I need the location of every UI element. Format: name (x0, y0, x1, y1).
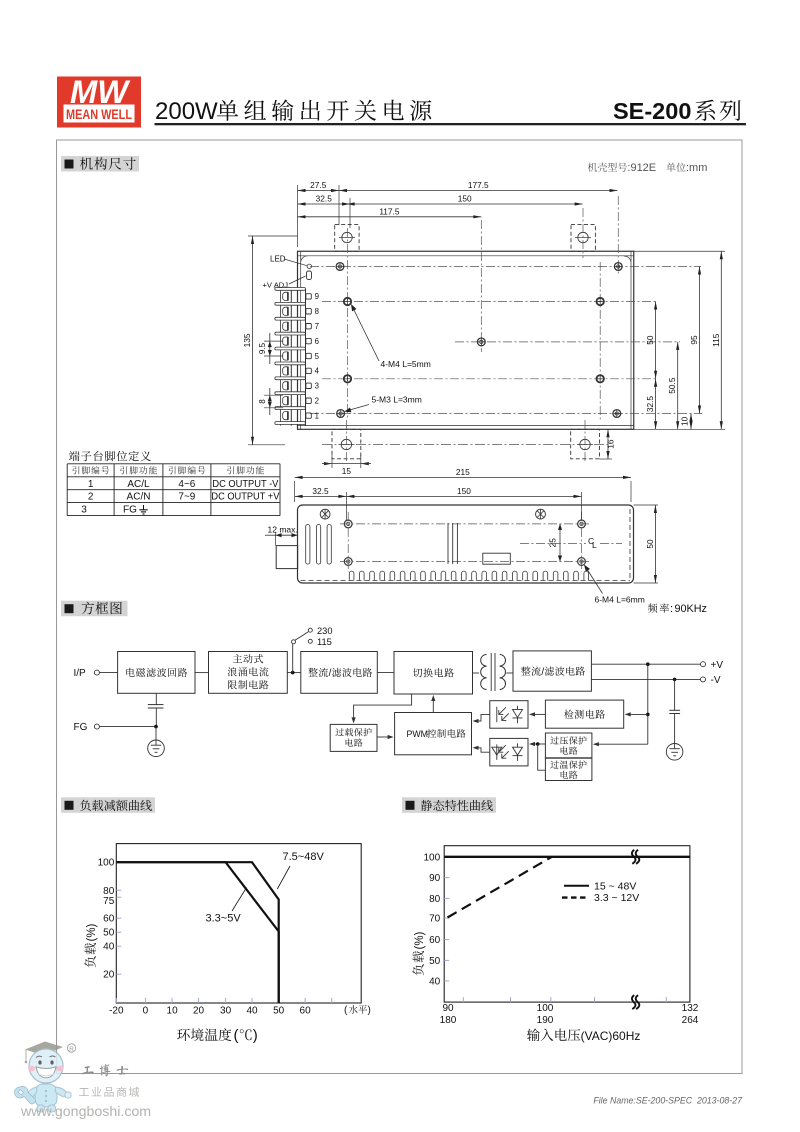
svg-text:6: 6 (315, 337, 319, 346)
svg-text:60: 60 (103, 914, 115, 925)
svg-text:4-M4 L=5mm: 4-M4 L=5mm (381, 359, 431, 369)
svg-text:I/P: I/P (74, 668, 87, 679)
svg-text:www.gongboshi.com: www.gongboshi.com (20, 1104, 151, 1120)
svg-text:60: 60 (300, 1006, 312, 1017)
svg-text:100: 100 (98, 858, 115, 869)
svg-text:50: 50 (645, 539, 655, 549)
svg-text:10: 10 (680, 416, 690, 426)
svg-text:115: 115 (317, 637, 332, 647)
svg-text:(%): (%) (86, 923, 98, 941)
svg-text:40: 40 (103, 942, 115, 953)
svg-text:1: 1 (88, 479, 94, 490)
svg-text:90: 90 (429, 873, 441, 884)
svg-text:/: / (541, 667, 544, 678)
svg-text:100: 100 (424, 852, 441, 863)
svg-text:20: 20 (103, 970, 115, 981)
svg-text:32.5: 32.5 (316, 194, 333, 204)
svg-text:3: 3 (315, 382, 319, 391)
svg-text:AC/L: AC/L (127, 479, 150, 490)
svg-text:50: 50 (103, 928, 115, 939)
svg-text:50: 50 (273, 1006, 285, 1017)
svg-text:FG: FG (123, 505, 137, 516)
svg-text:32.5: 32.5 (312, 486, 329, 496)
svg-text:(VAC)60Hz: (VAC)60Hz (581, 1029, 641, 1043)
svg-text:4~6: 4~6 (178, 479, 195, 490)
svg-text:DC OUTPUT +V: DC OUTPUT +V (211, 492, 279, 503)
svg-text:30: 30 (220, 1006, 232, 1017)
svg-text:177.5: 177.5 (468, 180, 489, 190)
svg-text:DC OUTPUT -V: DC OUTPUT -V (212, 479, 278, 490)
svg-text:6-M4 L=6mm: 6-M4 L=6mm (595, 595, 645, 605)
svg-text:50.5: 50.5 (667, 377, 677, 394)
svg-text:230: 230 (317, 626, 333, 636)
svg-text:190: 190 (537, 1015, 554, 1026)
svg-text:15: 15 (342, 466, 352, 476)
svg-text:90: 90 (442, 1003, 454, 1014)
svg-text:SE-200: SE-200 (613, 98, 691, 124)
svg-text:4: 4 (315, 367, 320, 376)
svg-text::mm: :mm (686, 162, 707, 174)
svg-text:2: 2 (88, 492, 94, 503)
svg-text:50: 50 (429, 956, 441, 967)
svg-text:File Name:SE-200-SPEC 2013-08: File Name:SE-200-SPEC 2013-08-27 (593, 1096, 743, 1106)
svg-text:+V: +V (711, 660, 724, 671)
svg-text:40: 40 (429, 976, 441, 987)
svg-text:7: 7 (315, 322, 319, 331)
svg-text:1: 1 (315, 411, 319, 420)
svg-text:PWM: PWM (407, 729, 429, 739)
svg-text:117.5: 117.5 (379, 206, 400, 216)
svg-text::912E: :912E (627, 162, 656, 174)
svg-text:264: 264 (682, 1015, 699, 1026)
svg-text:/: / (329, 668, 332, 679)
svg-text:3.3 ~ 12V: 3.3 ~ 12V (594, 892, 639, 904)
svg-text:-20: -20 (109, 1006, 124, 1017)
svg-text:16: 16 (606, 439, 616, 449)
svg-text:0: 0 (143, 1006, 149, 1017)
svg-text:MEAN WELL: MEAN WELL (66, 107, 132, 122)
svg-text:7~9: 7~9 (178, 492, 195, 503)
svg-text:10: 10 (167, 1006, 179, 1017)
svg-text:70: 70 (429, 914, 441, 925)
svg-text:(: ( (234, 1027, 239, 1044)
svg-text::: : (670, 603, 673, 615)
svg-text:132: 132 (682, 1003, 699, 1014)
svg-text:80: 80 (429, 894, 441, 905)
svg-text:135: 135 (242, 333, 252, 347)
svg-text:90KHz: 90KHz (675, 603, 707, 615)
svg-text:150: 150 (457, 486, 471, 496)
svg-text:FG: FG (74, 722, 88, 733)
svg-text:8: 8 (258, 399, 267, 404)
svg-text:+V ADJ.: +V ADJ. (263, 281, 291, 290)
svg-text:7.5~48V: 7.5~48V (283, 851, 325, 863)
svg-text:AC/N: AC/N (127, 492, 151, 503)
svg-text:27.5: 27.5 (310, 180, 327, 190)
svg-text:115: 115 (711, 333, 721, 347)
svg-text:LED: LED (270, 255, 286, 264)
svg-text:L: L (592, 540, 597, 550)
svg-text:(%): (%) (414, 931, 426, 949)
svg-text:R: R (69, 1046, 74, 1053)
svg-text:50: 50 (645, 335, 655, 345)
svg-text:25: 25 (548, 538, 558, 548)
svg-text:100: 100 (537, 1003, 554, 1014)
svg-text:12 max.: 12 max. (268, 525, 298, 535)
svg-text:32.5: 32.5 (645, 396, 655, 413)
svg-text:8: 8 (315, 307, 319, 316)
svg-text:180: 180 (440, 1015, 457, 1026)
svg-text:200W: 200W (155, 98, 218, 125)
svg-text:): ) (368, 1005, 371, 1016)
svg-text:150: 150 (458, 194, 472, 204)
svg-text:(: ( (344, 1005, 348, 1016)
svg-text:15 ~ 48V: 15 ~ 48V (594, 880, 636, 892)
svg-text:): ) (253, 1027, 258, 1044)
svg-text:3.3~5V: 3.3~5V (206, 913, 242, 925)
svg-text:3: 3 (81, 505, 87, 516)
svg-text:75: 75 (103, 896, 115, 907)
svg-text:60: 60 (429, 935, 441, 946)
svg-text:2: 2 (315, 397, 319, 406)
svg-text:95: 95 (689, 335, 699, 345)
svg-text:5: 5 (315, 352, 320, 361)
svg-text:9.5: 9.5 (258, 342, 267, 354)
svg-text:215: 215 (456, 467, 470, 477)
svg-text:20: 20 (193, 1006, 205, 1017)
svg-text:9: 9 (315, 292, 319, 301)
svg-text:-V: -V (711, 675, 721, 686)
svg-text:40: 40 (246, 1006, 258, 1017)
svg-text:5-M3 L=3mm: 5-M3 L=3mm (372, 395, 422, 405)
